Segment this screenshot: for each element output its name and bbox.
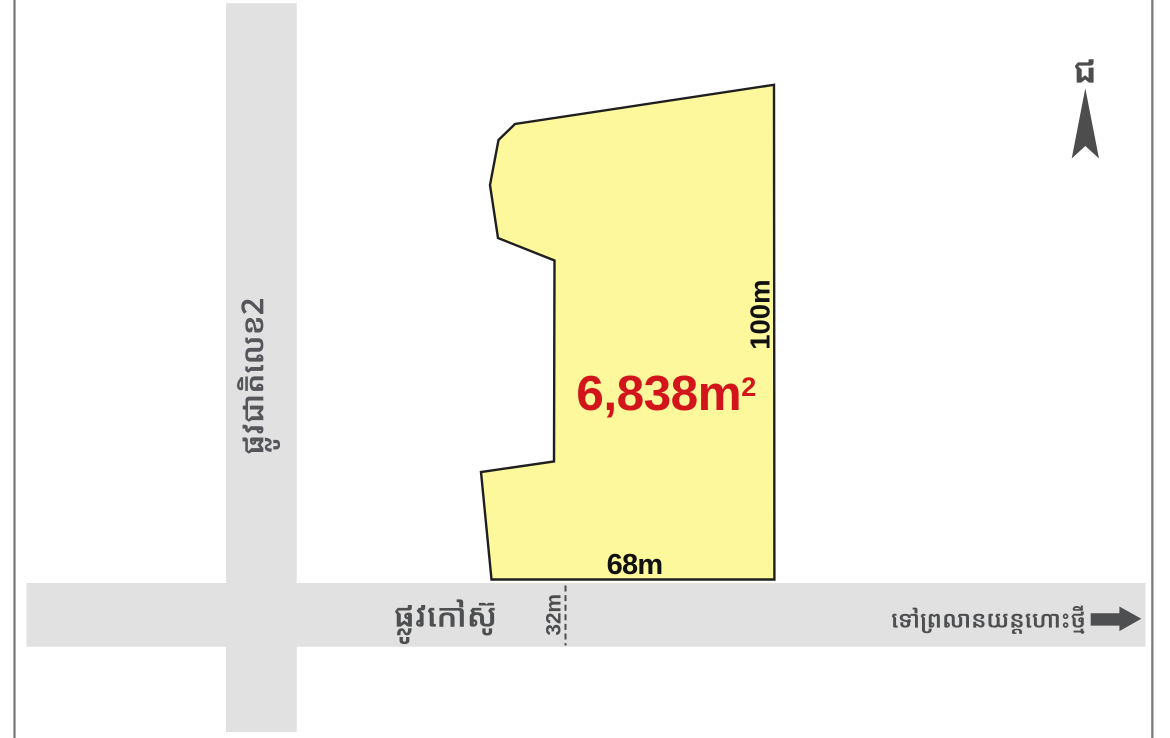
- svg-text:6,838m2: 6,838m2: [576, 366, 755, 421]
- svg-text:68m: 68m: [607, 549, 663, 581]
- svg-text:100m: 100m: [745, 279, 776, 349]
- svg-text:32m: 32m: [542, 594, 565, 635]
